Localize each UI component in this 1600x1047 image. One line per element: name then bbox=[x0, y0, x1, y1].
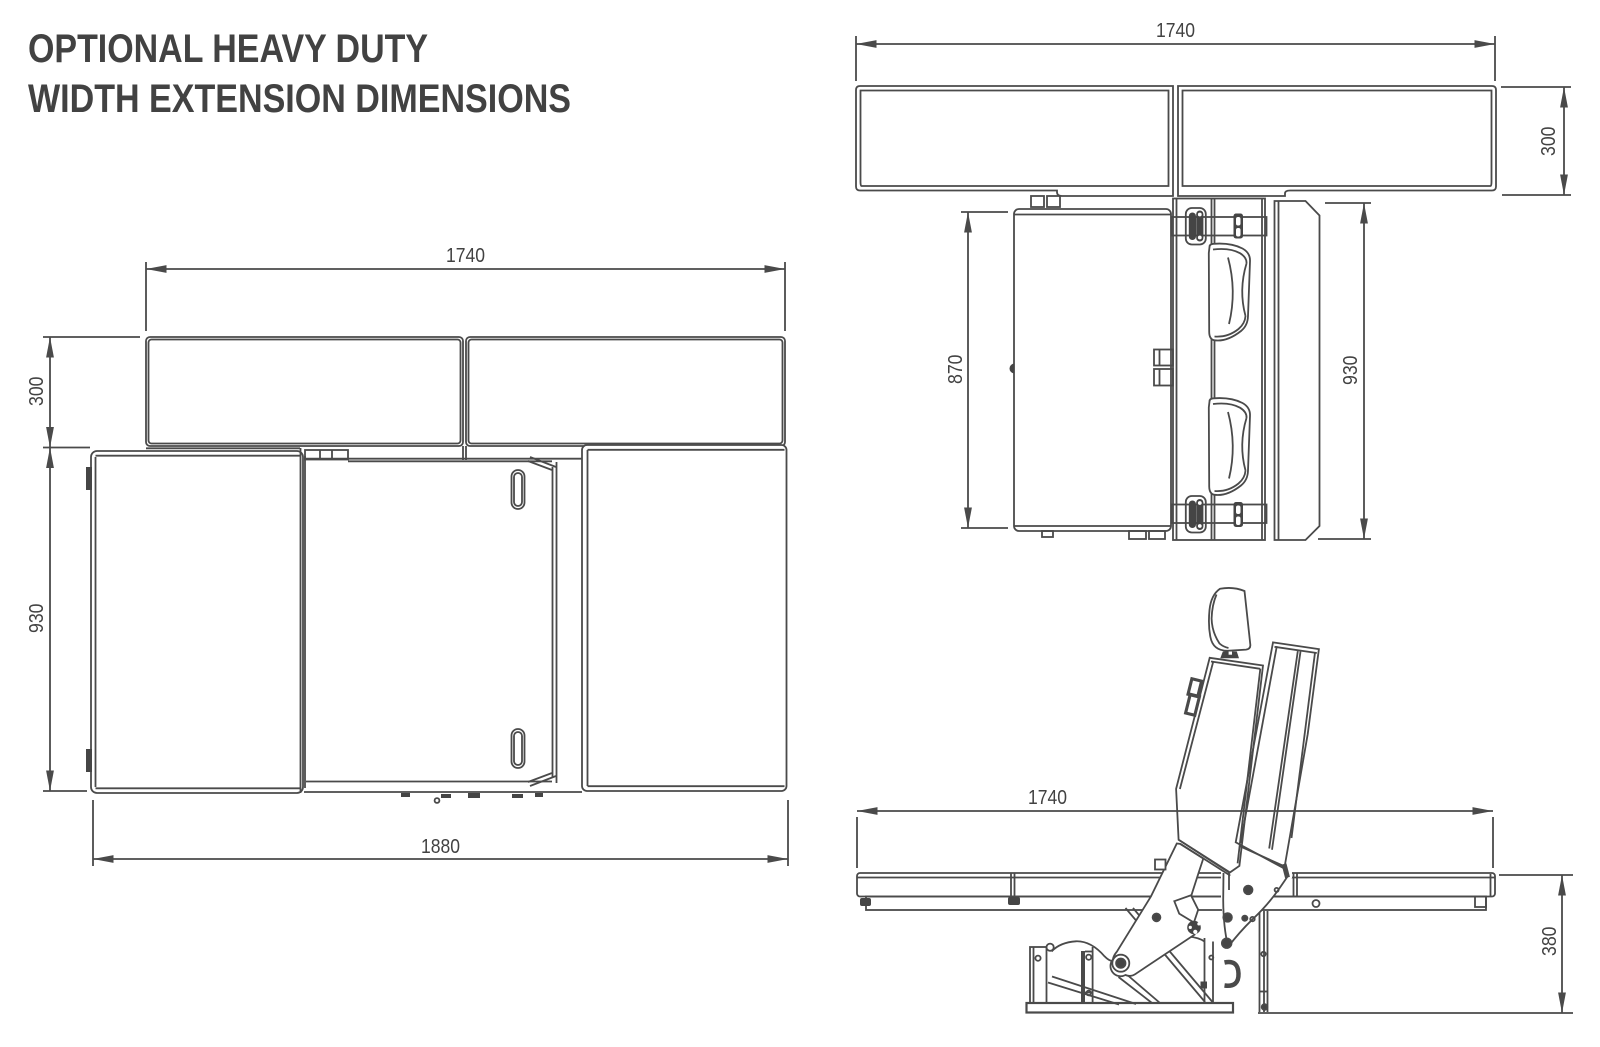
svg-text:300: 300 bbox=[1538, 127, 1560, 157]
svg-text:870: 870 bbox=[945, 355, 967, 385]
svg-text:380: 380 bbox=[1539, 927, 1561, 957]
svg-text:OPTIONAL HEAVY DUTY: OPTIONAL HEAVY DUTY bbox=[28, 27, 428, 71]
svg-text:930: 930 bbox=[1340, 356, 1362, 386]
svg-text:930: 930 bbox=[26, 604, 48, 634]
svg-text:1740: 1740 bbox=[446, 245, 485, 267]
svg-text:WIDTH EXTENSION DIMENSIONS: WIDTH EXTENSION DIMENSIONS bbox=[28, 77, 571, 121]
svg-text:1740: 1740 bbox=[1028, 787, 1067, 809]
svg-text:1740: 1740 bbox=[1156, 20, 1195, 42]
svg-text:1880: 1880 bbox=[421, 836, 460, 858]
svg-text:300: 300 bbox=[26, 377, 48, 407]
